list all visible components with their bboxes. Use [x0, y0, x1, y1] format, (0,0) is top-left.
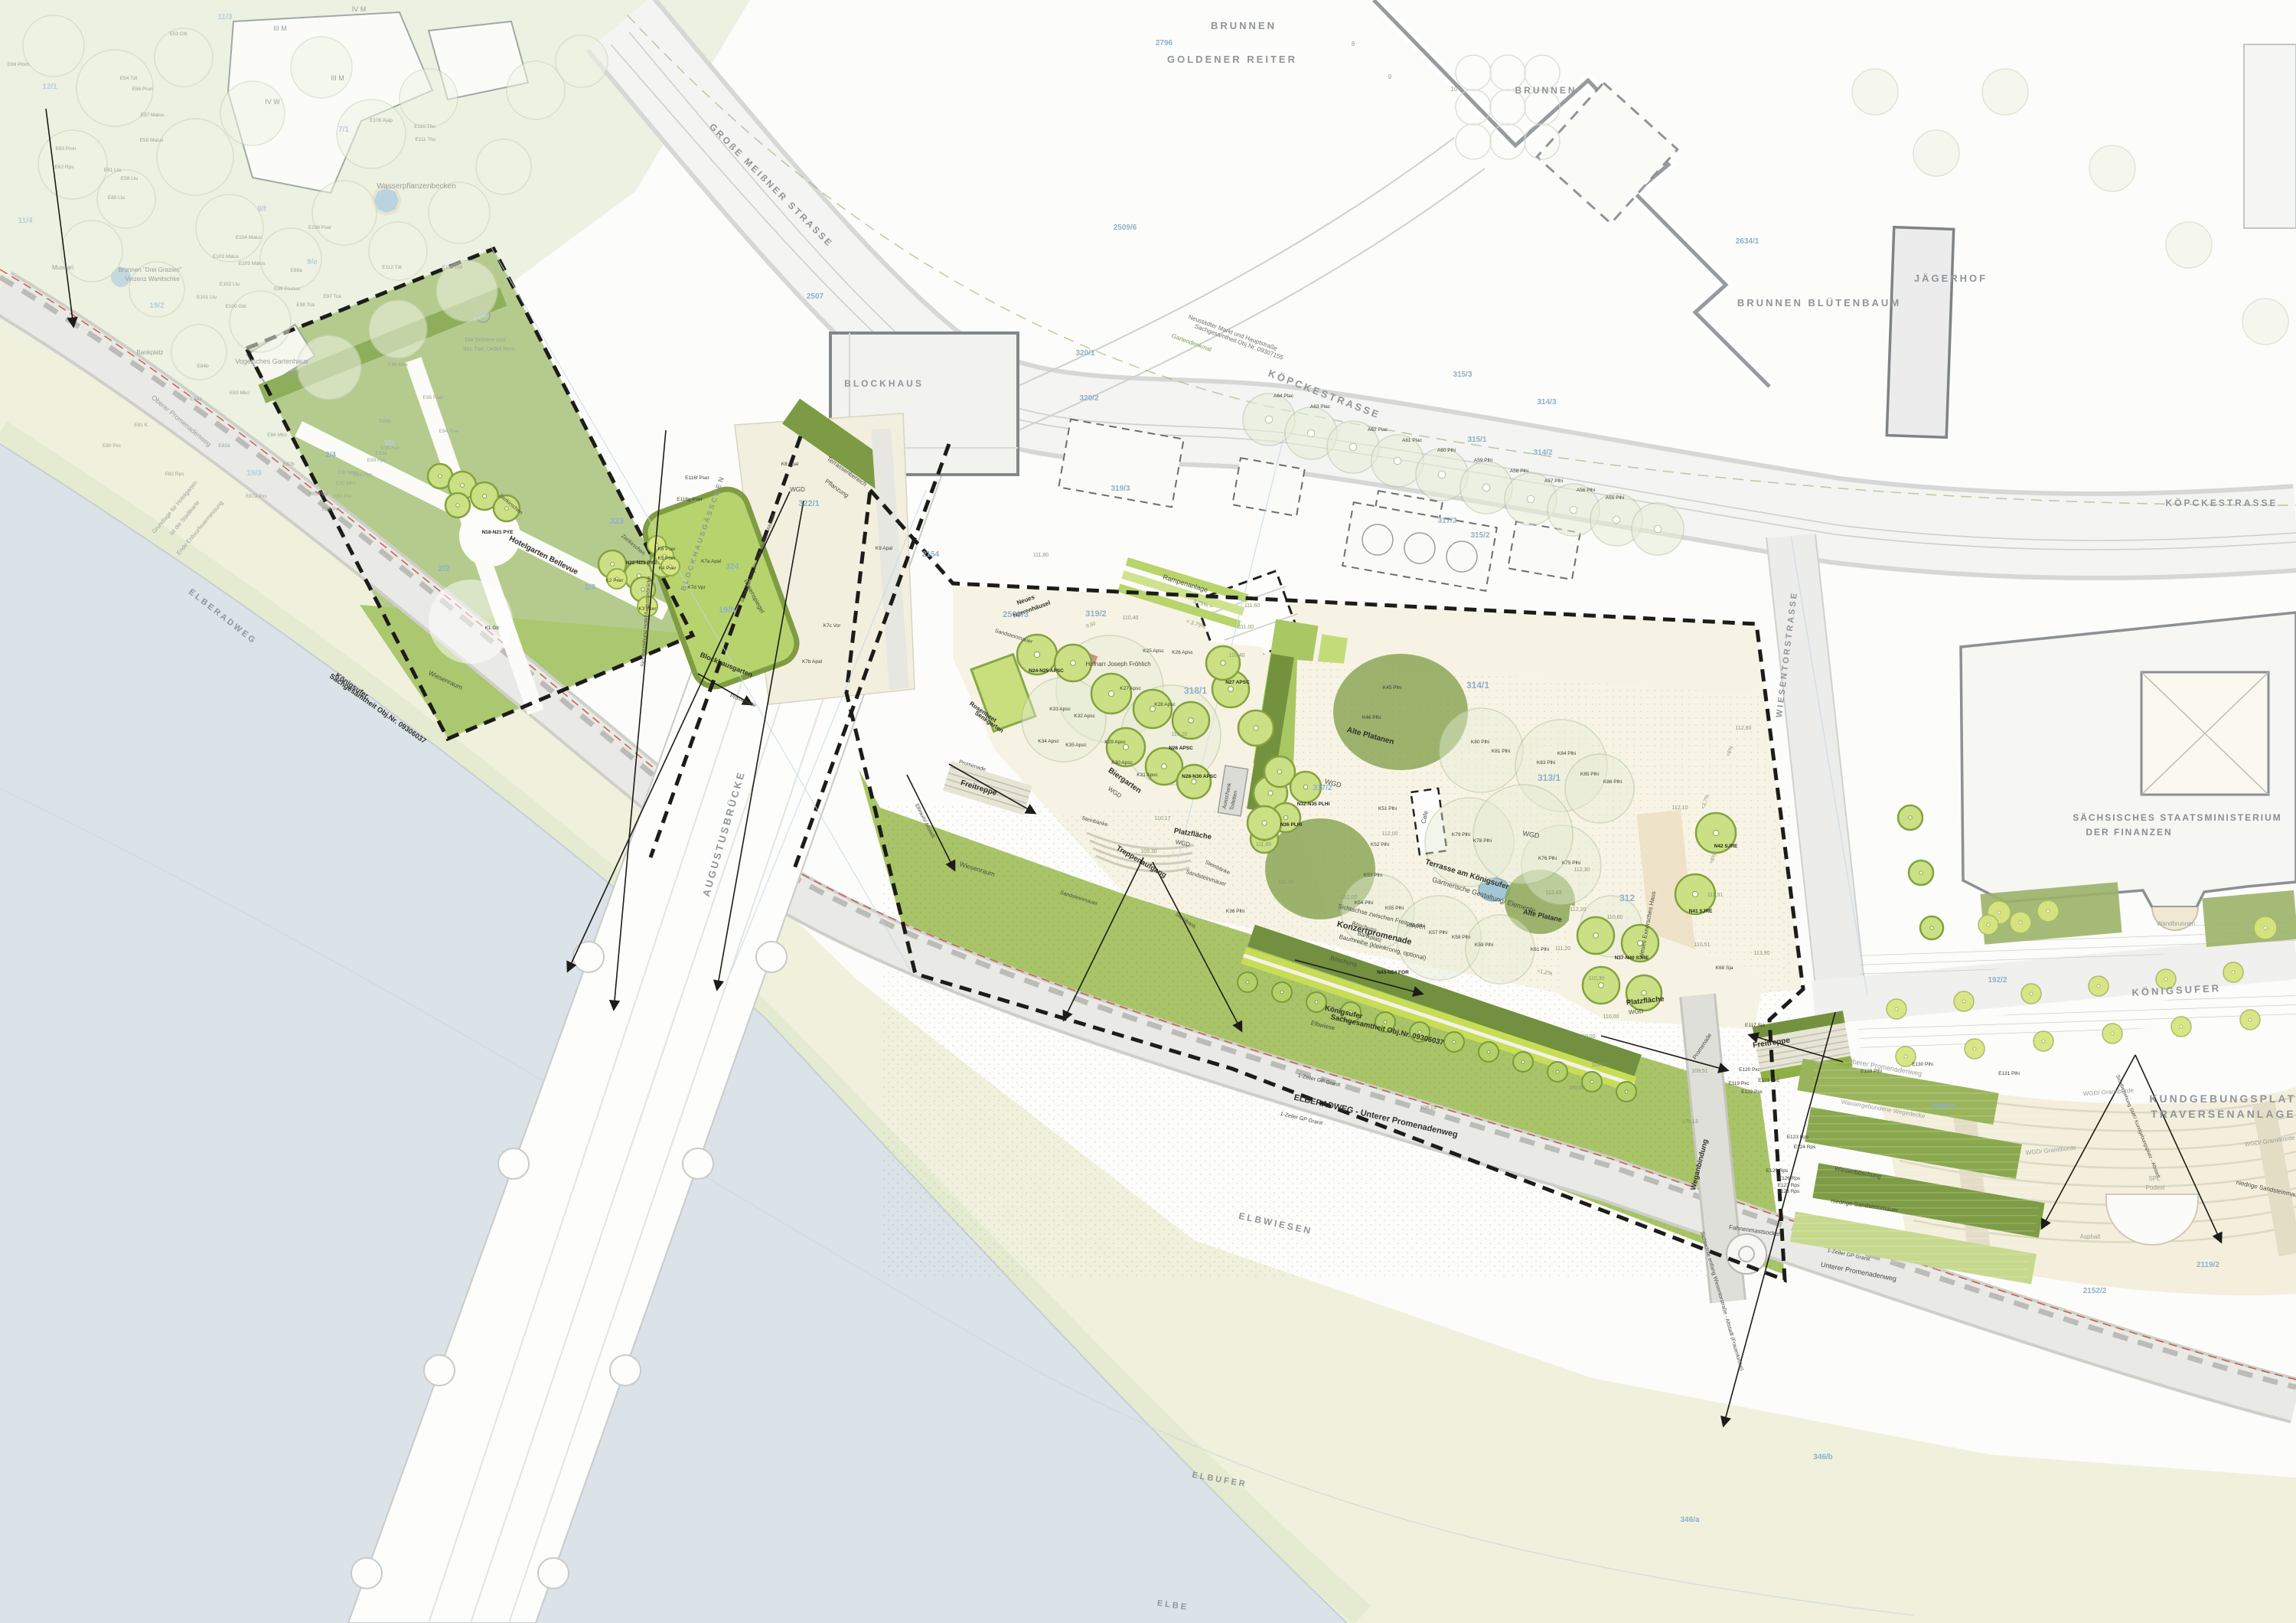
annotation-faded-label: Wandbrunnen	[2157, 920, 2195, 927]
tree-trunk-dot	[1654, 525, 1662, 533]
tree-existing-faded	[476, 139, 531, 194]
tree-trunk-dot	[460, 483, 464, 487]
ministry-label: DER FINANZEN	[2086, 827, 2172, 838]
tree-tag-faded-label: E86 Pxc	[322, 507, 341, 512]
tree-trunk-dot	[2047, 909, 2050, 913]
tree-trunk-dot	[1283, 815, 1287, 819]
elevation-label: 111,31	[1707, 893, 1723, 898]
tree-trunk-dot	[1280, 991, 1283, 994]
tree-existing-faded	[157, 119, 233, 195]
tree-tag-label: E127 Rps	[1778, 1183, 1800, 1188]
tree-existing-faded	[507, 61, 565, 119]
tree-tag-label: E131 Plhi	[1998, 1071, 2020, 1076]
parcel-label: 318/1	[1184, 685, 1207, 696]
tree-tag-faded-label: E82b	[282, 462, 295, 467]
tree-tag-faded-label: E109 Ajap	[370, 118, 393, 123]
tree-trunk-dot	[1487, 1050, 1490, 1053]
parcel-label: 2796	[1156, 39, 1173, 47]
parcel-faded-label: 17	[479, 312, 487, 319]
tree-tag-faded-label: E60 Ltu	[108, 195, 126, 201]
tree-tag-label: A55 Plhi	[1606, 495, 1624, 501]
tree-existing-faded	[230, 291, 291, 352]
parcel-faded-label: 9/e	[307, 258, 318, 266]
tree-tag-faded-label: E103 Malus	[213, 254, 240, 260]
tree-trunk-dot	[1307, 429, 1315, 437]
elevation-label: 113,90	[1754, 951, 1770, 956]
parcel-label: 346/a	[1680, 1516, 1699, 1524]
tree-existing-faded	[171, 325, 227, 380]
tree-existing-faded	[2089, 145, 2135, 191]
parcel-label: 2/3	[585, 583, 595, 592]
tree-tag-label: K61 Plhi	[1531, 947, 1549, 952]
tree-tag-faded-label: E89 Ppc	[367, 458, 386, 463]
tree-tag-new-label: N32-N35 PLHI	[1297, 802, 1330, 807]
tree-tag-label: K46 Plhi	[1362, 715, 1381, 720]
annotation-faded-label: III M	[273, 24, 287, 32]
elevation-label: 110,00	[1580, 1034, 1596, 1040]
tree-trunk-dot	[1692, 891, 1698, 896]
tree-trunk-dot	[1527, 495, 1534, 503]
tree-trunk-dot	[2180, 1025, 2183, 1028]
tree-tag-label: K1 Gtr	[485, 625, 501, 631]
annotation-faded-label: 8	[1352, 41, 1355, 47]
tree-tag-label: E120 Pxc	[1739, 1067, 1761, 1073]
tree-tag-new-label: N43-N54 FOR	[1377, 970, 1409, 975]
tree-existing-faded	[291, 37, 352, 98]
tree-trunk-dot	[1277, 769, 1282, 774]
street-label: JÄGERHOF	[1914, 273, 1988, 284]
elevation-label: 112,10	[1672, 805, 1688, 811]
elevation-label: 111,65	[1256, 842, 1271, 847]
tree-existing-faded	[556, 35, 608, 87]
parcel-label: 315/1	[1467, 436, 1486, 444]
parcel-faded-label: 11/4	[18, 217, 33, 225]
annotation-faded-label: Die Schöne und	[465, 336, 505, 343]
tree-trunk-dot	[1268, 791, 1273, 795]
elevation-label: 109,30	[1140, 849, 1157, 854]
tree-trunk-dot	[1221, 661, 1225, 665]
tree-trunk-dot	[1394, 457, 1401, 465]
tree-tag-faded-label: E106 Pser	[308, 225, 332, 230]
tree-tag-label: K58 Plhi	[1452, 935, 1470, 940]
annotation-faded-label: IV M	[352, 5, 367, 13]
tree-trunk-dot	[1384, 1020, 1387, 1024]
tree-tag-label: E124 Rps	[1794, 1145, 1816, 1150]
tree-tag-faded-label: E101 Ltu	[197, 295, 217, 300]
tree-existing-faded	[297, 335, 361, 400]
tree-tag-label: A60 Plhi	[1437, 448, 1456, 453]
parcel-label: 315/2	[1470, 531, 1489, 540]
fahnenmastsockel	[1727, 1234, 1766, 1274]
street-label: KÖPCKESTRASSE	[2165, 497, 2278, 508]
tree-tag-new-label: N26 APSC	[1169, 746, 1193, 751]
tree-trunk-dot	[1228, 687, 1234, 692]
tree-tag-label: K54 Plhi	[1355, 900, 1373, 906]
site-plan-map: BRUNNENGOLDENER REITERBRUNNENBRUNNEN BLÜ…	[0, 0, 2296, 1623]
tree-tag-label: K27 Apsc	[1120, 686, 1141, 691]
tree-trunk-dot	[1593, 933, 1599, 939]
tree-existing-faded	[337, 100, 406, 168]
annotation-faded-label: Podest	[2146, 1184, 2166, 1191]
tree-trunk-dot	[1904, 1055, 1907, 1058]
tree-tag-label: K36 Plhi	[1226, 909, 1244, 914]
tree-trunk-dot	[2232, 971, 2235, 974]
tree-tag-new-label: N41 SJRE	[1689, 909, 1713, 914]
tree-tag-faded-label: E104 Malus	[236, 235, 263, 240]
annotation-faded-label: 10	[1451, 86, 1458, 93]
annotation-faded-label: 9	[1388, 73, 1392, 80]
annotation-faded-label: Vogelsches Gartenhaus	[235, 358, 308, 365]
tree-tag-label: K32 Apsc	[1074, 714, 1095, 719]
site-plan-page: BRUNNENGOLDENER REITERBRUNNENBRUNNEN BLÜ…	[0, 0, 2296, 1623]
tree-tag-label: A58 Plhi	[1510, 469, 1528, 474]
tree-tag-faded-label: E62 Rps	[55, 165, 75, 170]
tree-tag-faded-label: E105 Malus	[239, 261, 266, 266]
tree-tag-label: K6 Pser	[657, 547, 676, 552]
tree-tag-label: K52 Plhi	[1371, 842, 1389, 847]
tree-tag-faded-label: E94 Pser	[439, 429, 461, 434]
street-label: KUNDGEBUNGSPLATZ	[2149, 1092, 2296, 1105]
tree-tag-label: K85 Plhi	[1580, 772, 1599, 777]
parcel-label: 2634/1	[1736, 237, 1760, 246]
tree-trunk-dot	[1521, 1060, 1525, 1063]
tree-existing-faded	[312, 181, 377, 245]
tree-tag-faded-label: E84 Mko	[267, 433, 287, 438]
elevation-label: 110,51	[1694, 942, 1711, 948]
parcel-label: 315/3	[1453, 371, 1472, 379]
parcel-label: 319/3	[1110, 485, 1130, 493]
tree-tag-label: E116f Pser	[685, 475, 710, 481]
tree-tag-faded-label: E57 Malus	[141, 113, 165, 118]
tree-tag-faded-label: E97 Tca	[323, 294, 341, 299]
parcel-label: 346/b	[1813, 1453, 1833, 1461]
tree-trunk-dot	[2264, 926, 2267, 929]
tree-tag-faded-label: E93b	[379, 419, 391, 424]
tree-trunk-dot	[1599, 983, 1604, 988]
parcel-label: 2152/2	[2083, 1287, 2107, 1295]
tree-tag-label: K2 Pser	[605, 578, 624, 583]
elevation-label: 112,20	[1570, 907, 1587, 913]
tree-tag-label: K81 Plhi	[1492, 749, 1510, 754]
tree-tag-faded-label: E99 Prunus	[274, 286, 301, 292]
tree-tag-label: K80 Plhi	[1471, 740, 1489, 745]
tree-existing-faded	[369, 300, 427, 358]
tree-tag-label: K59 Plhi	[1475, 942, 1493, 948]
tree-existing-faded	[23, 15, 84, 77]
tree-tag-faded-label: E84a	[190, 397, 202, 402]
tree-tag-label: K7c Vor	[823, 623, 842, 629]
parcel-label: 2509/3	[1003, 610, 1029, 619]
tree-tag-label: A59 Plhi	[1474, 458, 1492, 463]
parcel-label: 2/2	[438, 564, 449, 573]
parcel-label: 314/1	[1466, 680, 1489, 691]
tree-tag-faded-label: E93 Mko	[338, 470, 357, 475]
tree-canopy	[1439, 708, 1523, 792]
elevation-label: 110,30	[1589, 976, 1605, 981]
tree-tag-label: A62 Plac	[1368, 427, 1388, 433]
tree-tag-label: A64 Plac	[1274, 394, 1294, 399]
annotation-faded-label: Brunnen "Drei Grazien"	[118, 266, 181, 273]
tree-tag-label: E119 Pxc	[1728, 1081, 1750, 1086]
tree-tag-label: K78 Plhi	[1473, 838, 1492, 844]
parcel-label: 323	[610, 517, 624, 526]
annotation-faded-label: III M	[331, 74, 344, 82]
tree-tag-faded-label: E85 Ppe	[309, 491, 328, 497]
tree-existing-faded	[1852, 69, 1898, 115]
parcel-label: 19/h	[719, 606, 735, 615]
tree-existing-faded	[196, 194, 263, 262]
tree-tag-faded-label: E111 Thu	[415, 137, 435, 142]
tree-existing-faded	[2166, 222, 2212, 268]
tree-tag-faded-label: E93a	[375, 451, 387, 456]
tree-trunk-dot	[1265, 416, 1273, 423]
annotation-faded-label: SPL	[2148, 1175, 2161, 1182]
tree-tag-label: K84 Plhi	[1557, 751, 1576, 756]
tree-existing-faded	[155, 28, 213, 87]
tree-trunk-dot	[1034, 651, 1039, 657]
tree-tag-new-label: N28-N30 APSC	[1182, 774, 1217, 779]
tree-tag-label: K57 Plhi	[1429, 930, 1447, 936]
tree-tag-label: E129 Plhi	[1861, 1069, 1882, 1074]
tree-trunk-dot	[1349, 443, 1357, 451]
tree-existing-faded	[1913, 130, 1959, 176]
annotation-faded-label: das Tier, Detlef Rein.	[463, 345, 517, 352]
elevation-label: 108,15	[1420, 1105, 1437, 1111]
tree-tag-label: K55 Plhi	[1385, 906, 1404, 911]
tree-tag-new-label: N24-N25 APSC	[1029, 668, 1064, 674]
tree-tag-label: E126 Rps	[1779, 1176, 1801, 1181]
tree-trunk-dot	[1642, 991, 1646, 995]
tree-canopy	[1466, 915, 1534, 984]
tree-tag-label: E128 Rps	[1778, 1189, 1800, 1194]
tree-trunk-dot	[2249, 1018, 2252, 1021]
tree-trunk-dot	[2042, 1040, 2045, 1043]
elevation-label: 110,60	[1607, 915, 1623, 920]
elevation-label: 111,00	[1238, 625, 1254, 630]
tree-tag-label: A56 Plhi	[1577, 488, 1595, 493]
parcel-label: 2154	[922, 550, 940, 559]
tree-trunk-dot	[1071, 661, 1076, 666]
parcel-label: 320/2	[1079, 394, 1098, 403]
tree-tag-faded-label: E61 Ltu	[104, 168, 122, 173]
elevation-label: 111,20	[1555, 946, 1570, 952]
tree-tag-label: K35 Apsc	[1065, 743, 1087, 748]
tree-tag-label: K31 Apsc	[1137, 772, 1158, 778]
tree-trunk-dot	[641, 588, 644, 591]
parcel-label: 2119/2	[2197, 1261, 2219, 1269]
tree-canopy	[1565, 754, 1634, 823]
parcel-label: 2509/6	[1114, 224, 1137, 232]
tree-trunk-dot	[1482, 484, 1490, 491]
tree-tag-label: A57 Plhi	[1544, 478, 1563, 484]
tree-trunk-dot	[1108, 691, 1114, 696]
tree-tag-label: K9 Apal	[876, 546, 893, 551]
annotation-faded-label: Vinzenz Wanitschke	[125, 276, 180, 282]
tree-tag-faded-label: E112 Tdi	[382, 265, 401, 270]
tree-trunk-dot	[1987, 923, 1990, 926]
tree-trunk-dot	[1590, 1080, 1593, 1083]
tree-trunk-dot	[2019, 921, 2022, 924]
tree-tag-faded-label: E102 Ltu	[220, 282, 240, 287]
elevation-label: 112,30	[1574, 867, 1590, 873]
tree-trunk-dot	[1192, 779, 1196, 784]
tree-tag-label: K68 Sja	[1716, 965, 1733, 971]
parcel-label: 322/1	[798, 499, 820, 508]
tree-tag-faded-label: E95 Pser	[423, 395, 445, 400]
tree-trunk-dot	[1262, 821, 1267, 825]
annotation-label: WGD	[790, 486, 805, 493]
tree-tag-faded-label: E98 Tca	[296, 302, 315, 308]
tree-tag-label: K76 Plhi	[1538, 856, 1557, 861]
annotation-faded-label: Bankplatz	[136, 349, 163, 356]
street-label: BRUNNEN	[1515, 85, 1577, 96]
tree-tag-faded-label: E82a	[218, 443, 230, 449]
tree-existing-faded	[400, 69, 458, 127]
tree-tag-label: K86 Plhi	[1603, 779, 1622, 785]
parcel-label: 2/4	[325, 451, 336, 459]
tree-tag-faded-label: E56 Prun	[132, 87, 152, 92]
tree-trunk-dot	[439, 475, 442, 478]
tree-trunk-dot	[1303, 785, 1308, 789]
annotation-label: Hofnarr Joseph Fröhlich	[1085, 661, 1150, 668]
parcel-faded-label: 9/f	[257, 205, 266, 214]
tree-tag-faded-label: E84b	[197, 364, 209, 369]
tree-trunk-dot	[1438, 471, 1446, 478]
tree-tag-label: K29 Apsc	[1104, 740, 1126, 745]
parcel-label: 317/2	[1313, 784, 1332, 792]
parcel-label: 313/1	[1538, 772, 1561, 783]
tree-tag-faded-label: E99a	[290, 268, 302, 273]
tree-tag-faded-label: E54 Tdi	[120, 76, 137, 81]
tree-tag-faded-label: E100 Gbi	[225, 304, 246, 309]
tree-tag-new-label: N37-N40 SJRE	[1615, 955, 1649, 961]
tree-tag-label: E121 Pxc	[1758, 1078, 1780, 1083]
tree-trunk-dot	[1998, 911, 2001, 914]
parcel-faded-label: 11/3	[218, 13, 233, 21]
tree-tag-label: K28 Apsc	[1154, 702, 1176, 707]
tree-tag-label: A61 Plac	[1402, 438, 1423, 443]
street-label: TRAVERSENANLAGE	[2151, 1108, 2295, 1120]
parcel-label: 317/3	[1437, 517, 1456, 525]
tree-trunk-dot	[2097, 985, 2100, 988]
parcel-faded-label: 19/2	[149, 302, 165, 310]
tree-trunk-dot	[1625, 1090, 1628, 1093]
tree-trunk-dot	[1162, 764, 1167, 769]
tree-tag-faded-label: E90 Fex	[381, 446, 400, 451]
tree-trunk-dot	[1613, 516, 1620, 524]
tree-tag-label: K30 Apsc	[1111, 760, 1133, 766]
parcel-label: 314/3	[1537, 398, 1556, 407]
parcel-label: 2507	[807, 292, 824, 301]
tree-existing-faded	[369, 222, 427, 280]
parcel-label: 2495/3	[1932, 1102, 1955, 1111]
tree-trunk-dot	[1962, 1000, 1965, 1003]
tree-trunk-dot	[2164, 978, 2167, 981]
parcel-faded-label: 12/1	[42, 83, 57, 91]
tree-tag-label: E125 Rps	[1766, 1168, 1789, 1174]
tree-trunk-dot	[1556, 1070, 1559, 1073]
annotation-faded-label: Muscari	[52, 264, 73, 271]
tree-trunk-dot	[1895, 1007, 1898, 1011]
tree-trunk-dot	[1254, 726, 1258, 730]
tree-existing-faded	[429, 182, 490, 243]
ministry-label: SÄCHSISCHES STAATSMINISTERIUM	[2073, 811, 2282, 823]
tree-tag-new-label: N42 SJRE	[1714, 844, 1738, 849]
elevation-label: 109,00	[1568, 1086, 1585, 1091]
tree-trunk-dot	[1315, 1001, 1318, 1004]
tree-tag-faded-label: E87 Pxc	[334, 494, 353, 499]
street-label: BRUNNEN BLÜTENBAUM	[1737, 297, 1901, 309]
tree-tag-label: E116g Pser	[677, 497, 703, 502]
tree-tag-label: K7d Vpr	[687, 585, 706, 590]
tree-tag-label: K5 Pser	[657, 556, 676, 561]
tree-trunk-dot	[1919, 871, 1923, 874]
tree-tag-label: E123 Rps	[1787, 1135, 1809, 1140]
annotation-faded-label: Wasserpflanzenbecken	[377, 182, 456, 191]
tree-tag-faded-label: E96 Mse	[388, 362, 408, 367]
tree-tag-new-label: N22-N23 PYE	[626, 560, 657, 566]
tree-tag-label: K7a Apal	[701, 559, 722, 564]
tree-tag-label: K4 Pser	[658, 566, 677, 571]
tree-tag-label: K33 Apsc	[1049, 707, 1071, 712]
tree-tag-label: K25 Apsc	[1143, 648, 1164, 654]
tree-tag-label: K51 Plhi	[1378, 806, 1397, 811]
tree-tag-label: K45 Plhi	[1383, 685, 1401, 691]
parcel-faded-label: 19/3	[246, 469, 262, 478]
tree-trunk-dot	[1124, 745, 1129, 750]
tree-existing-faded	[2242, 299, 2288, 345]
elevation-label: 111,60	[1244, 603, 1260, 609]
elevation-label: 109,00	[1591, 1063, 1608, 1068]
building-right-edge	[2244, 44, 2296, 228]
ministry-forecourt-green-2	[2202, 890, 2296, 947]
tree-tag-faded-label: E82 Rps	[165, 472, 185, 477]
tree-tag-faded-label: E66 Ptom	[8, 62, 30, 67]
elevation-label: 112,43	[1546, 890, 1562, 896]
tree-tag-label: K75 Plhi	[1562, 860, 1580, 866]
tree-tag-faded-label: E113 Gdi	[442, 265, 463, 270]
tree-tag-faded-label: E81 K.	[134, 423, 149, 428]
tree-existing-faded	[220, 81, 285, 145]
tree-trunk-dot	[1909, 816, 1912, 819]
tree-trunk-dot	[2030, 992, 2033, 995]
parcel-label: 192/2	[1988, 976, 2007, 985]
tree-trunk-dot	[482, 494, 486, 498]
elevation-label: 111,60	[1278, 880, 1293, 885]
elevation-label: 111,80	[1033, 553, 1049, 558]
tree-existing-faded	[61, 220, 122, 282]
tree-trunk-dot	[1453, 1040, 1456, 1043]
tree-tag-label: K83 Plhi	[1537, 760, 1555, 766]
street-label: BRUNNEN	[1211, 20, 1277, 31]
tree-tag-label: A63 Plac	[1310, 404, 1331, 410]
tree-trunk-dot	[505, 507, 509, 511]
tree-tag-new-label: N27 APSC	[1225, 680, 1250, 685]
tree-trunk-dot	[1246, 981, 1249, 984]
annotation-faded-label: IV W	[265, 98, 280, 106]
tree-tag-label: E117 Sja	[1745, 1023, 1765, 1028]
elevation-label: 112,02	[1342, 895, 1358, 900]
tree-tag-new-label: N36 PLHI	[1280, 822, 1303, 828]
parcel-label: 319/2	[1085, 609, 1107, 619]
tree-tag-label: E122 Pxc	[1741, 1089, 1763, 1095]
annotation-faded-label: Asphalt	[2080, 1233, 2101, 1240]
tree-tag-new-label: N18-N21 PYE	[482, 530, 514, 535]
tree-tag-faded-label: E80 Pxc	[103, 443, 122, 449]
parcel-label: 314/2	[1533, 449, 1552, 457]
tree-trunk-dot	[610, 562, 614, 566]
tree-tag-label: K3 Pser	[638, 606, 657, 612]
